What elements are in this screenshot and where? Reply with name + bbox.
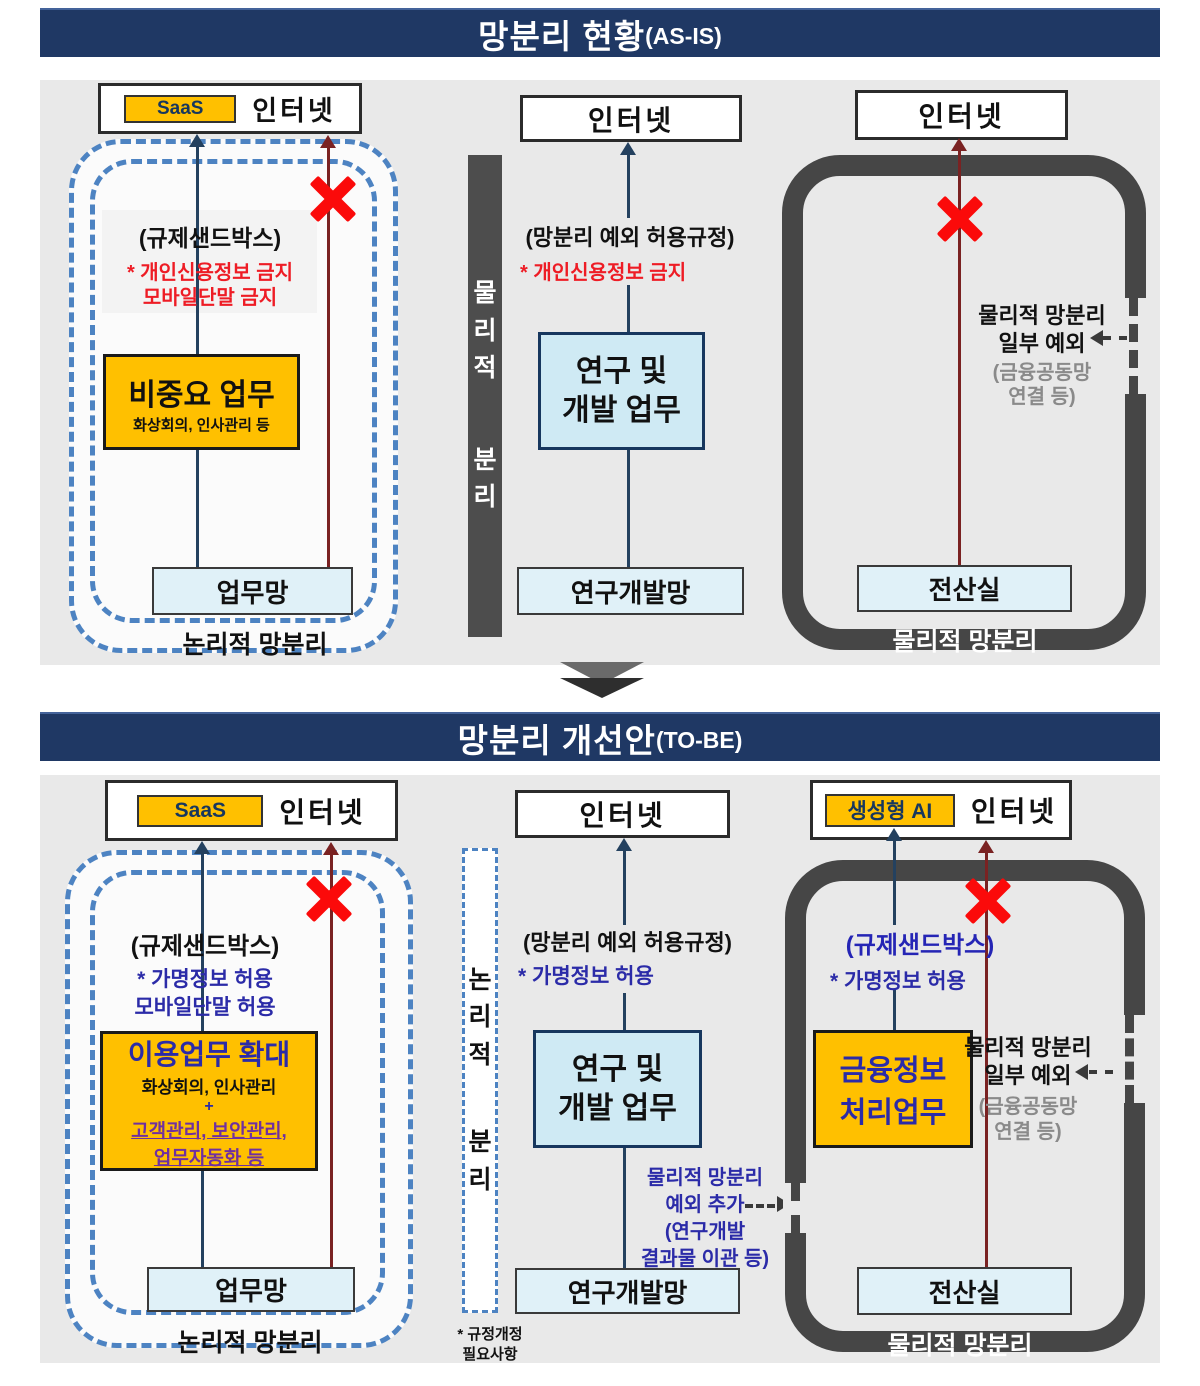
connector-line [627,154,630,218]
work-box-line2: 처리업무 [840,1089,947,1131]
physical-exception-add-note: 물리적 망분리 예외 추가 (연구개발 결과물 이관 등) [625,1165,785,1273]
internet-box-left: SaaS 인터넷 [105,780,398,841]
added-work-1: 고객관리, 보안관리, [131,1116,287,1143]
rnd-line-2: 개발 업무 [558,1089,677,1128]
divider-label-bottom: 분리 [467,1124,494,1199]
allow-note: * 가명정보 허용 [518,960,718,990]
exception-rule-label: (망분리 예외 허용규정) [510,220,750,252]
work-box-line1: 금융정보 [840,1047,947,1089]
non-critical-work-box: 비중요 업무 화상회의, 인사관리 등 [103,354,300,450]
sandbox-label: (규제샌드박스) [90,926,320,961]
connector-line-genai [893,840,896,925]
exception-arrow-dash [745,1204,775,1208]
connector-line [627,450,630,567]
to-be-panel: SaaS 인터넷 (규제샌드박스) * 가명정보 허용 모바일단말 허용 이용업… [40,775,1160,1363]
internet-box-middle: 인터넷 [515,790,730,838]
exception-arrow-dash [1089,1070,1113,1074]
blocked-x-icon [306,172,360,226]
exception-arrow-icon [1090,330,1103,346]
work-box-subtitle: 화상회의, 인사관리 등 [133,414,270,435]
rnd-line-2: 개발 업무 [562,391,681,430]
divider-label-top: 물리적 [472,275,499,388]
physical-exception-line4: 연결 등) [948,1115,1108,1144]
regulation-footnote-2: 필요사항 [425,1343,555,1364]
saas-tag: SaaS [124,95,236,123]
rnd-network-box: 연구개발망 [517,567,744,615]
as-is-banner-title: 망분리 현황 [478,10,645,58]
work-box-subtitle: 화상회의, 인사관리 [142,1073,277,1098]
connector-line [623,850,626,925]
network-separation-diagram: 망분리 현황(AS-IS) SaaS 인터넷 (규제샌드박스) * 개인신용정보… [0,0,1200,1386]
plus-sign: + [204,1098,213,1116]
divider-label-bottom: 분리 [472,442,499,517]
internet-box-right: 생성형 AI 인터넷 [810,780,1072,840]
physical-exception-line4: 연결 등) [962,380,1122,409]
restriction-note: * 개인신용정보 금지 [510,256,760,285]
rnd-line-1: 연구 및 [576,352,667,391]
internet-box-right: 인터넷 [855,90,1068,140]
sandbox-label: (규제샌드박스) [820,925,1020,960]
sandbox-label: (규제샌드박스) [100,219,320,253]
exception-arrow-dash [1103,336,1127,340]
transition-chevron-icon [560,678,644,698]
exception-add-line4: 결과물 이관 등) [625,1246,785,1273]
logical-separation-label: 논리적 망분리 [100,1323,400,1359]
connector-line [623,993,626,1030]
to-be-banner-title: 망분리 개선안 [458,714,656,762]
server-room-box: 전산실 [857,1267,1072,1315]
allow-note-1: * 가명정보 허용 [95,963,315,993]
work-box-title: 이용업무 확대 [128,1033,290,1073]
exception-add-line1: 물리적 망분리 [625,1165,785,1192]
expanded-work-box: 이용업무 확대 화상회의, 인사관리 + 고객관리, 보안관리, 업무자동화 등 [100,1031,318,1171]
restriction-note-2: 모바일단말 금지 [90,281,330,310]
border-gap-dashes [1129,298,1138,394]
server-room-box: 전산실 [857,565,1072,612]
connector-line [627,285,630,332]
business-network-box: 업무망 [152,567,353,615]
rnd-work-box: 연구 및 개발 업무 [533,1030,702,1148]
physical-separation-label: 물리적 망분리 [815,622,1115,658]
internet-label: 인터넷 [252,89,336,128]
physical-separation-bar: 물리적 분리 [468,155,502,637]
internet-label: 인터넷 [971,790,1057,830]
exception-arrow-icon [1075,1064,1088,1080]
internet-label: 인터넷 [579,794,665,834]
to-be-banner-suffix: (TO-BE) [656,727,742,754]
as-is-banner: 망분리 현황(AS-IS) [40,8,1160,57]
blocked-x-icon [302,872,356,926]
as-is-panel: SaaS 인터넷 (규제샌드박스) * 개인신용정보 금지 모바일단말 금지 비… [40,80,1160,665]
blocked-x-icon [933,192,987,246]
allow-note: * 가명정보 허용 [830,965,1010,995]
divider-label-top: 논리적 [467,962,494,1075]
saas-tag: SaaS [137,795,263,827]
rnd-line-1: 연구 및 [572,1050,663,1089]
physical-separation-label: 물리적 망분리 [810,1326,1110,1362]
business-network-box: 업무망 [147,1267,355,1312]
border-gap-dashes [791,1183,800,1233]
exception-rule-label: (망분리 예외 허용규정) [505,925,750,957]
rnd-work-box: 연구 및 개발 업무 [538,332,705,450]
work-box-title: 비중요 업무 [128,370,274,414]
regulation-footnote-1: * 규정개정 [425,1323,555,1344]
internet-box-left: SaaS 인터넷 [98,83,362,134]
added-work-2: 업무자동화 등 [154,1143,264,1170]
border-gap-dashes [1125,1015,1134,1103]
internet-label: 인터넷 [588,99,674,139]
to-be-banner: 망분리 개선안(TO-BE) [40,712,1160,761]
logical-separation-bar: 논리적 분리 [462,848,498,1313]
allow-note-2: 모바일단말 허용 [95,991,315,1021]
logical-separation-label: 논리적 망분리 [105,625,405,661]
internet-label: 인터넷 [918,95,1004,135]
exception-add-line3: (연구개발 [625,1219,785,1246]
rnd-network-box: 연구개발망 [515,1268,740,1314]
as-is-banner-suffix: (AS-IS) [645,23,722,50]
internet-label: 인터넷 [279,791,365,831]
genai-tag: 생성형 AI [825,794,955,827]
connector-line-genai [893,990,896,1030]
blocked-x-icon [961,874,1015,928]
internet-box-middle: 인터넷 [520,95,742,142]
